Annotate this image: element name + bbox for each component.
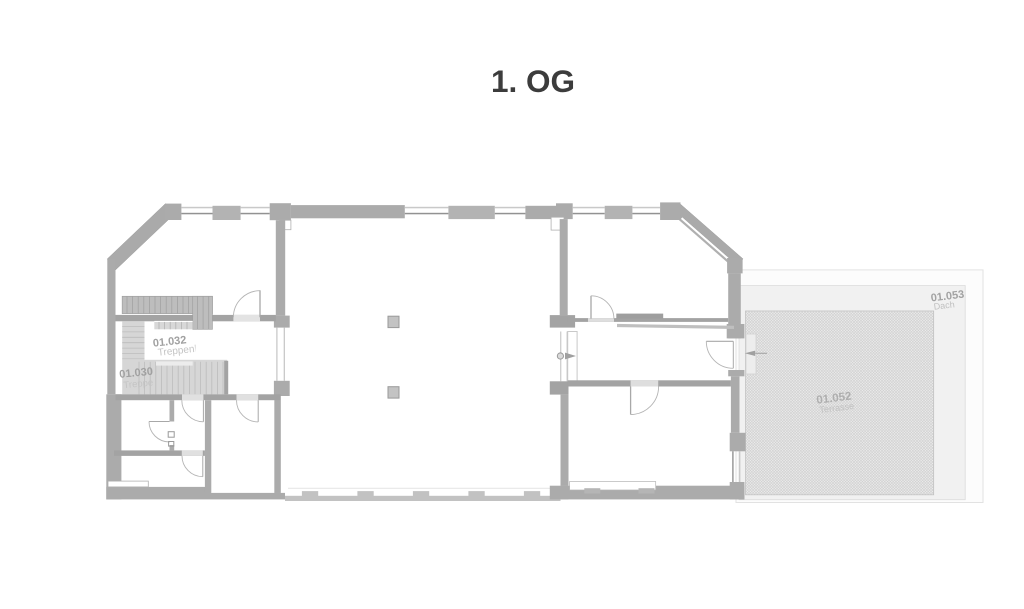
svg-text:1. OG: 1. OG	[491, 63, 575, 99]
